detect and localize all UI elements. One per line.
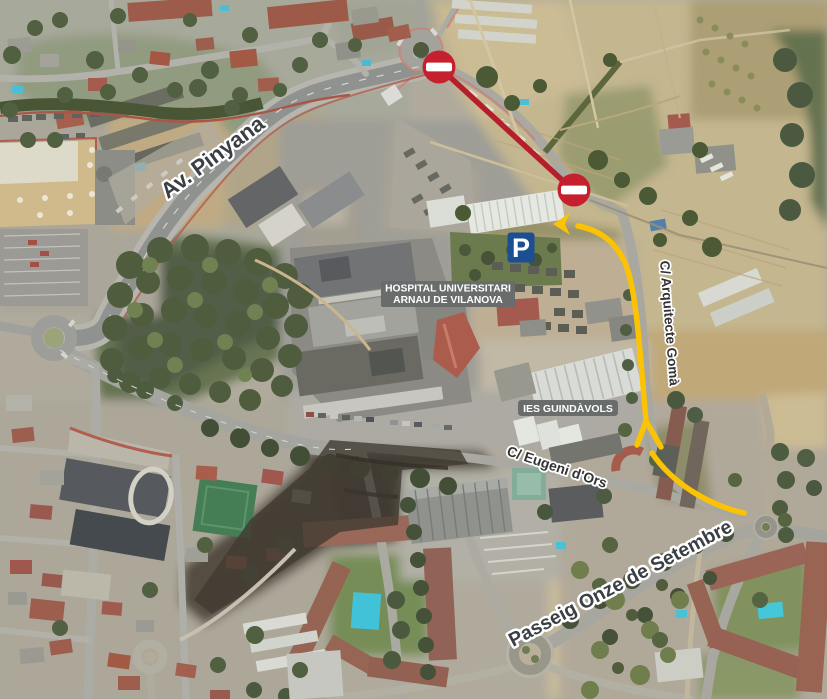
svg-text:HOSPITAL UNIVERSITARI: HOSPITAL UNIVERSITARI — [385, 284, 511, 295]
svg-text:IES GUINDÀVOLS: IES GUINDÀVOLS — [523, 402, 613, 415]
svg-text:P: P — [512, 233, 530, 263]
svg-text:ARNAU DE VILANOVA: ARNAU DE VILANOVA — [393, 295, 503, 306]
